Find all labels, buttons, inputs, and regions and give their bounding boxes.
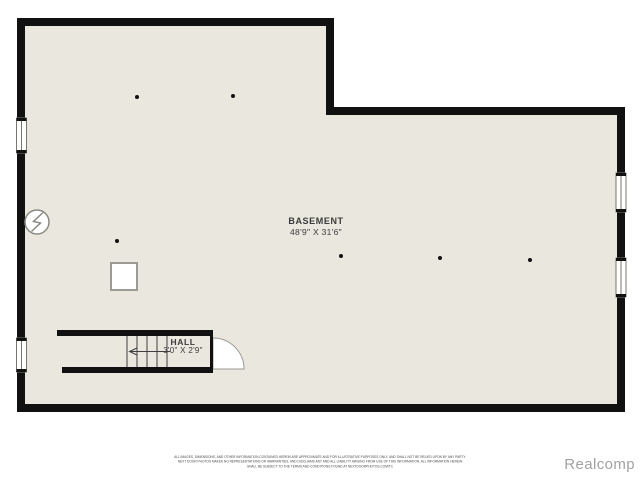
realcomp-watermark: Realcomp [564,456,635,473]
floorplan-drawing [0,0,640,480]
exterior-walls [21,22,621,408]
window-icon [17,118,27,153]
support-column-dot [135,95,139,99]
basement-room-dimensions: 48'9" X 31'6" [246,227,386,237]
support-column-dot [115,239,119,243]
window-icon [616,173,626,212]
support-column-dot [438,256,442,260]
floorplan-canvas: BASEMENT 48'9" X 31'6" HALL 3'0" X 2'9" … [0,0,640,480]
window-icon [616,258,626,297]
basement-room-label: BASEMENT [246,216,386,226]
disclaimer-line: SHALL BE SUBJECT TO THE TERMS AND CONDIT… [160,464,480,469]
utility-box-icon [111,263,137,290]
support-column-dot [231,94,235,98]
hall-room-dimensions: 3'0" X 2'9" [143,346,223,355]
disclaimer-text: ALL IMAGES, DIMENSIONS, AND OTHER INFORM… [160,455,480,469]
electrical-panel-icon [25,210,49,234]
support-column-dot [528,258,532,262]
support-column-dot [339,254,343,258]
window-icon [17,338,27,372]
